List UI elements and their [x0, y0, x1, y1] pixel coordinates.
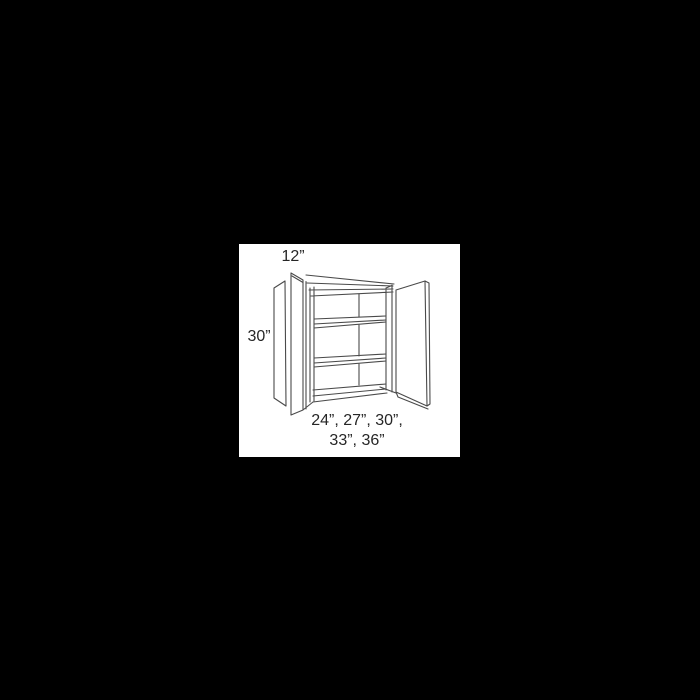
cabinet-frame [306, 275, 394, 402]
width-options-label-line2: 33”, 36” [329, 431, 384, 450]
cabinet-shelves [314, 316, 386, 367]
width-options-label-line1: 24”, 27”, 30”, [311, 411, 403, 430]
height-dimension-label: 30” [247, 327, 270, 346]
cabinet-left-side-panel [274, 281, 286, 406]
cabinet-bottom [313, 384, 396, 402]
cabinet-right-door [396, 281, 430, 409]
page-background: 12” 30” 24”, 27”, 30”, 33”, 36” [0, 0, 700, 700]
depth-dimension-label: 12” [281, 247, 304, 266]
product-image-panel: 12” 30” 24”, 27”, 30”, 33”, 36” [239, 244, 460, 457]
